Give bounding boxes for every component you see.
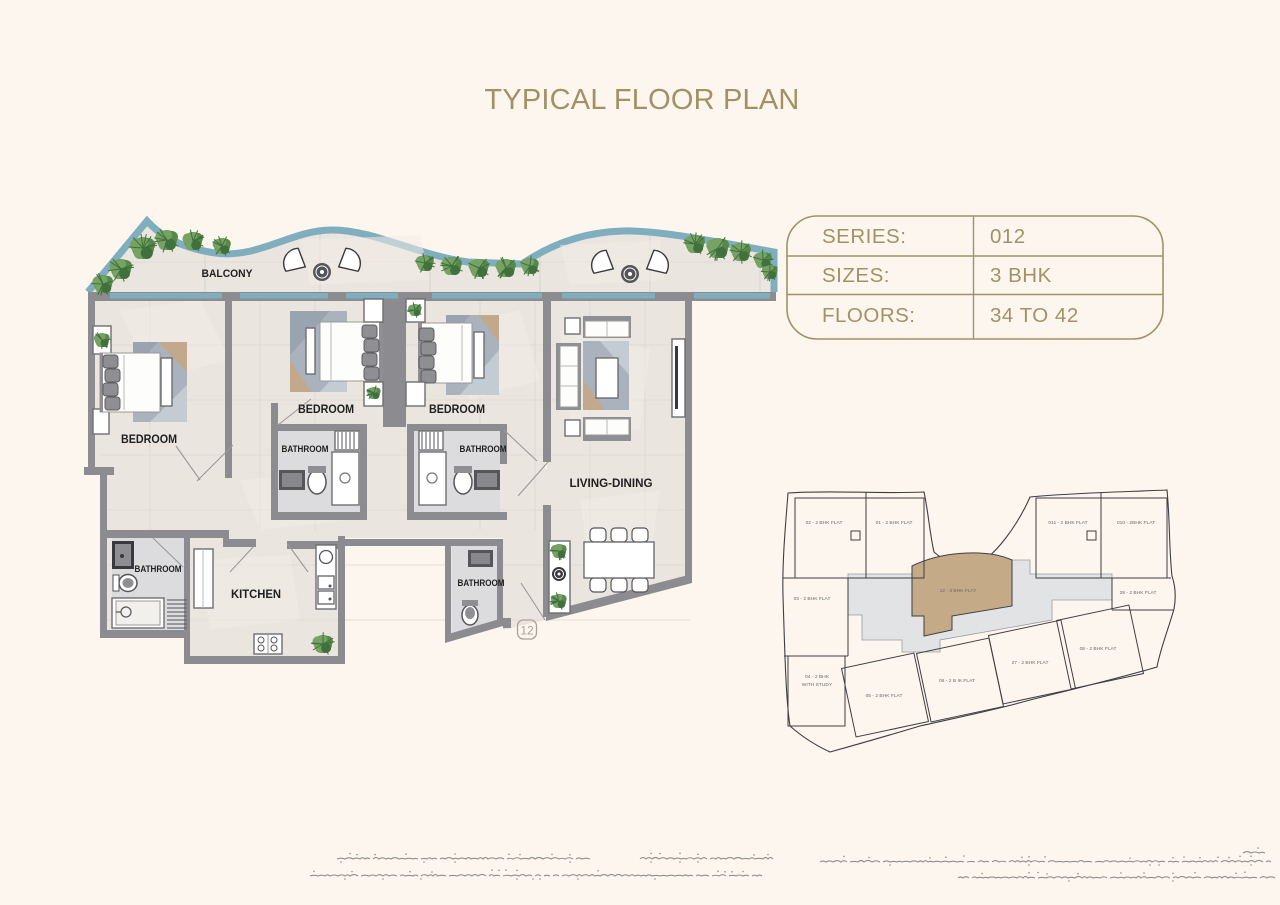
svg-text:SERIES:: SERIES: (822, 225, 906, 248)
svg-text:012: 012 (990, 225, 1026, 248)
svg-text:01 - 2 BHK FLAT: 01 - 2 BHK FLAT (876, 520, 913, 526)
svg-text:BATHROOM: BATHROOM (460, 444, 507, 454)
svg-text:34 TO 42: 34 TO 42 (990, 304, 1079, 327)
svg-text:3 BHK: 3 BHK (990, 264, 1052, 287)
svg-text:BEDROOM: BEDROOM (429, 402, 485, 416)
svg-text:BATHROOM: BATHROOM (282, 444, 329, 454)
svg-text:06 - 2 B IK FLAT: 06 - 2 B IK FLAT (939, 678, 975, 684)
svg-text:12: 12 (520, 624, 534, 638)
svg-text:SIZES:: SIZES: (822, 264, 890, 287)
svg-text:BEDROOM: BEDROOM (121, 432, 177, 446)
svg-text:05 - 2 BHK FLAT: 05 - 2 BHK FLAT (866, 693, 903, 699)
svg-text:BATHROOM: BATHROOM (458, 578, 505, 588)
svg-text:27 - 2 BHK FLAT: 27 - 2 BHK FLAT (1012, 660, 1049, 666)
svg-text:FLOORS:: FLOORS: (822, 304, 916, 327)
svg-text:08 - 2 BHK FLAT: 08 - 2 BHK FLAT (1080, 646, 1117, 652)
svg-text:04 - 2 BHK: 04 - 2 BHK (805, 674, 830, 680)
svg-text:KITCHEN: KITCHEN (231, 587, 281, 601)
svg-text:BALCONY: BALCONY (202, 268, 254, 280)
svg-text:010 - 2BHK FLAT: 010 - 2BHK FLAT (1117, 520, 1155, 526)
svg-text:29 - 2 BHK FLAT: 29 - 2 BHK FLAT (1120, 590, 1157, 596)
svg-text:LIVING-DINING: LIVING-DINING (570, 476, 653, 490)
svg-text:BEDROOM: BEDROOM (298, 402, 354, 416)
svg-text:12 - 3 BHK FLAT: 12 - 3 BHK FLAT (940, 588, 977, 594)
svg-text:011 - 2 BHK FLAT: 011 - 2 BHK FLAT (1048, 520, 1087, 526)
svg-text:TYPICAL FLOOR PLAN: TYPICAL FLOOR PLAN (484, 84, 799, 116)
svg-text:WITH STUDY: WITH STUDY (802, 682, 833, 688)
svg-text:BATHROOM: BATHROOM (135, 564, 182, 574)
svg-text:02 - 2 BHK FLAT: 02 - 2 BHK FLAT (806, 520, 843, 526)
svg-text:03 - 2 BHK FLAT: 03 - 2 BHK FLAT (794, 596, 831, 602)
